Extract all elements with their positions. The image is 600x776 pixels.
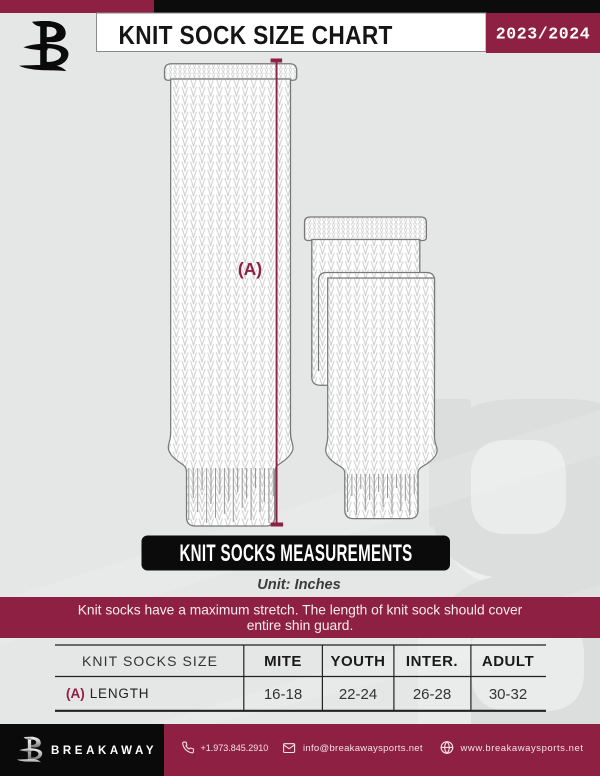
svg-text:+1.973.845.2910: +1.973.845.2910 — [201, 743, 269, 753]
svg-text:KNIT SOCKS MEASUREMENTS: KNIT SOCKS MEASUREMENTS — [179, 541, 412, 567]
svg-text:www.breakawaysports.net: www.breakawaysports.net — [460, 743, 584, 754]
svg-text:ADULT: ADULT — [482, 653, 534, 670]
svg-text:MITE: MITE — [264, 653, 302, 670]
svg-text:info@breakawaysports.net: info@breakawaysports.net — [303, 743, 423, 754]
svg-text:26-28: 26-28 — [413, 686, 451, 703]
svg-text:KNIT SOCK SIZE CHART: KNIT SOCK SIZE CHART — [119, 22, 393, 51]
svg-text:Knit socks have a maximum stre: Knit socks have a maximum stretch. The l… — [78, 603, 523, 618]
svg-text:(A)LENGTH: (A)LENGTH — [66, 686, 149, 701]
svg-text:30-32: 30-32 — [489, 686, 527, 703]
svg-text:22-24: 22-24 — [339, 686, 377, 703]
svg-text:BREAKAWAY: BREAKAWAY — [51, 745, 157, 757]
svg-text:2023/2024: 2023/2024 — [496, 25, 591, 44]
svg-text:(A): (A) — [238, 259, 262, 279]
svg-text:entire shin guard.: entire shin guard. — [247, 618, 354, 633]
svg-text:YOUTH: YOUTH — [331, 653, 386, 670]
svg-text:16-18: 16-18 — [264, 686, 302, 703]
svg-text:KNIT SOCKS SIZE: KNIT SOCKS SIZE — [82, 653, 218, 669]
svg-text:Unit: Inches: Unit: Inches — [257, 577, 341, 593]
svg-text:INTER.: INTER. — [406, 653, 458, 670]
